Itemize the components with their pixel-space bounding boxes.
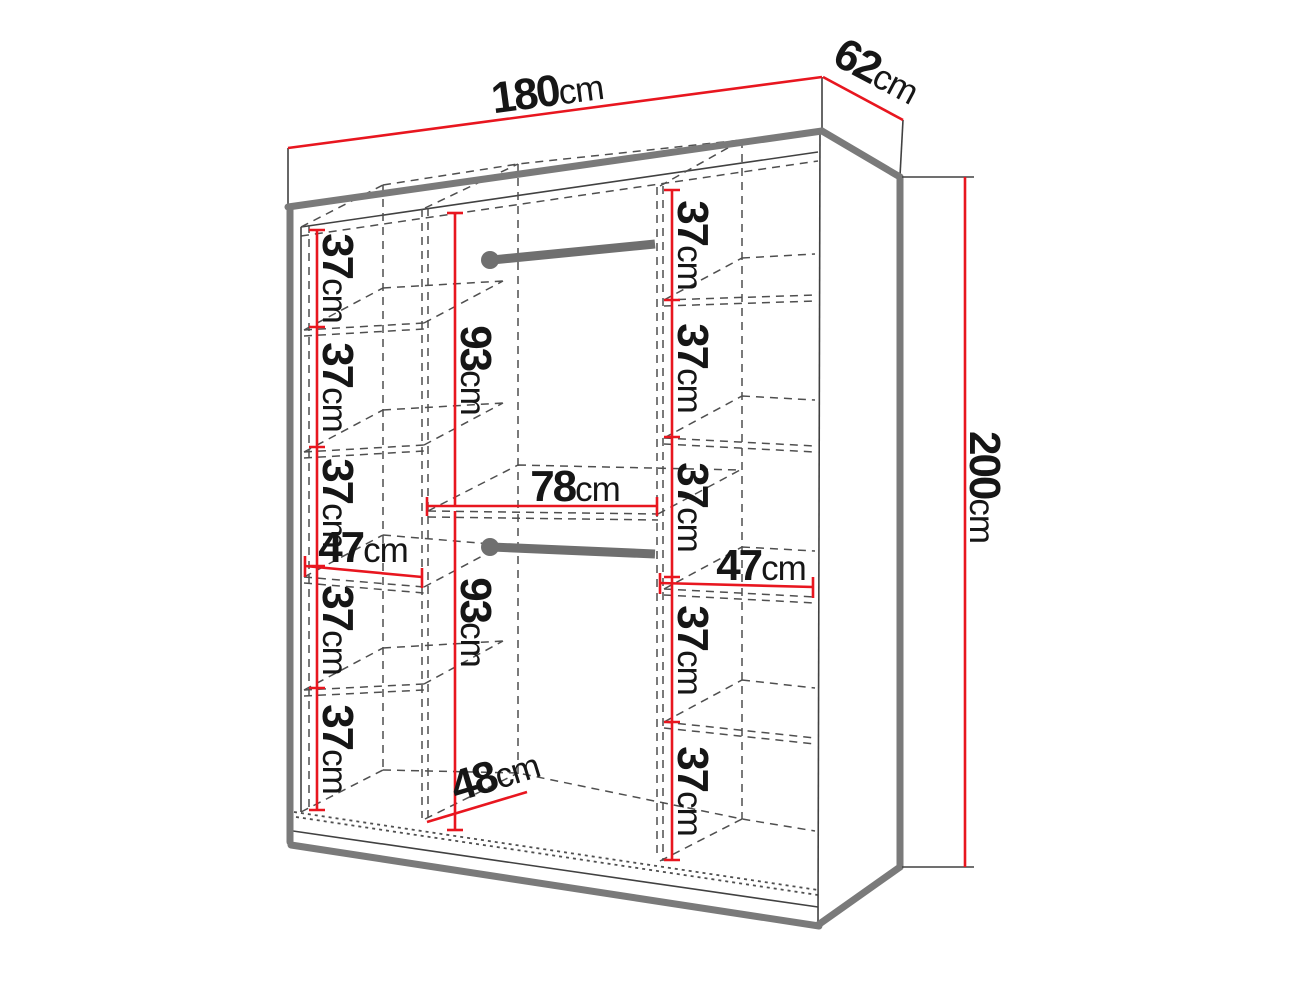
lower-hanging-label: 93cm [451, 577, 500, 667]
right-gap-label-4: 37cm [668, 605, 717, 695]
wardrobe-dimension-diagram: 180cm 62cm 200cm 37cm 37cm 37cm 37cm 37c… [0, 0, 1309, 982]
right-gap-label-1: 37cm [668, 200, 717, 290]
left-gap-label-2: 37cm [313, 342, 362, 432]
lower-rail-end-cap [481, 538, 499, 556]
left-gap-label-4: 37cm [313, 585, 362, 675]
side-panel-face [818, 131, 900, 925]
middle-width-label: 78cm [530, 462, 620, 511]
right-gap-label-5: 37cm [668, 746, 717, 836]
left-gap-label-1: 37cm [313, 233, 362, 323]
diagram-canvas: 180cm 62cm 200cm 37cm 37cm 37cm 37cm 37c… [0, 0, 1309, 982]
right-gap-label-3: 37cm [668, 462, 717, 552]
upper-hanging-label: 93cm [451, 325, 500, 415]
right-shelf-width-label: 47cm [716, 541, 806, 590]
right-gap-label-2: 37cm [668, 323, 717, 413]
upper-rail-end-cap [481, 251, 499, 269]
left-shelf-width-label: 47cm [318, 523, 408, 572]
left-gap-label-5: 37cm [313, 704, 362, 794]
height-label: 200cm [960, 431, 1009, 543]
